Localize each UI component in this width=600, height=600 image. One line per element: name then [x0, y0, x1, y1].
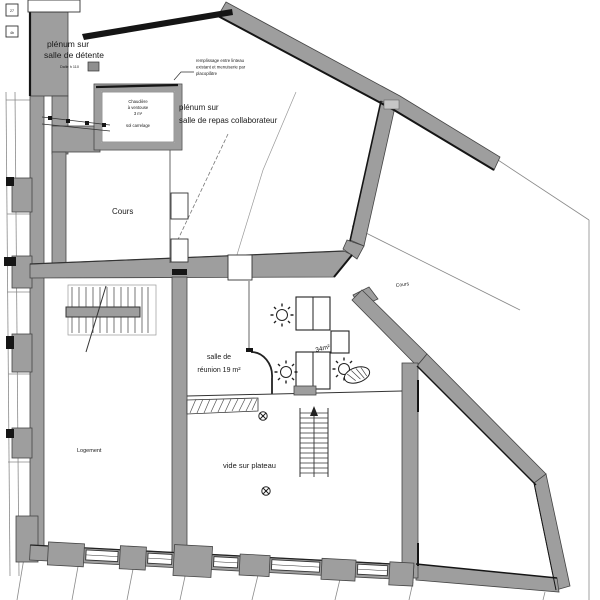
boiler-label-2: à ventouse	[128, 105, 149, 110]
label-dalle-note: Dalle h 110	[60, 65, 79, 69]
label-plenum-detente-1: plénum sur	[47, 39, 89, 49]
boiler-label-3: 3 m²	[134, 111, 143, 116]
meeting-room-door	[246, 281, 272, 394]
annotation-remplissage-3: placoplâtre	[196, 71, 218, 76]
label-vide-plateau: vide sur plateau	[223, 461, 276, 470]
slab-symbol	[88, 62, 99, 71]
label-logement: Logement	[77, 448, 102, 454]
void-area-elements	[187, 386, 402, 495]
boiler-label-1: Chaudière	[128, 99, 148, 104]
office-furniture	[271, 297, 372, 389]
black-wall-accents	[4, 9, 557, 590]
survey-point-icon	[262, 487, 270, 495]
survey-point-icon	[259, 412, 267, 420]
chair-symbol	[275, 361, 298, 384]
label-cours-right: Cours	[395, 281, 410, 289]
floor-plan-drawing: Chaudière à ventouse 3 m² sol carrelage	[0, 0, 600, 600]
annotation-remplissage-2: existant et menuiserie par	[196, 65, 246, 70]
annotation-remplissage-1: remplissage entre linteau	[196, 58, 245, 63]
label-box1: 27	[10, 9, 14, 13]
facade-boundary-lines	[6, 92, 589, 600]
label-cours-left: Cours	[112, 207, 133, 216]
label-reunion-1: salle de	[207, 354, 231, 361]
floor-plan-page: Chaudière à ventouse 3 m² sol carrelage	[0, 0, 600, 600]
boiler-label-4: sol carrelage	[126, 123, 151, 128]
boiler-room: Chaudière à ventouse 3 m² sol carrelage	[94, 84, 182, 150]
label-plenum-repas-2: salle de repas collaborateur	[179, 116, 278, 125]
staircase-ladder	[300, 406, 328, 477]
label-box2: 4b	[10, 31, 14, 35]
label-reunion-2: réunion 19 m²	[197, 367, 241, 374]
label-plenum-repas-1: plénum sur	[179, 103, 219, 112]
label-plenum-detente-2: salle de détente	[44, 50, 104, 60]
annotation-leader	[174, 72, 194, 80]
chair-symbol	[271, 304, 294, 327]
bottom-facade-wall	[29, 537, 414, 588]
staircase-left	[66, 285, 156, 352]
